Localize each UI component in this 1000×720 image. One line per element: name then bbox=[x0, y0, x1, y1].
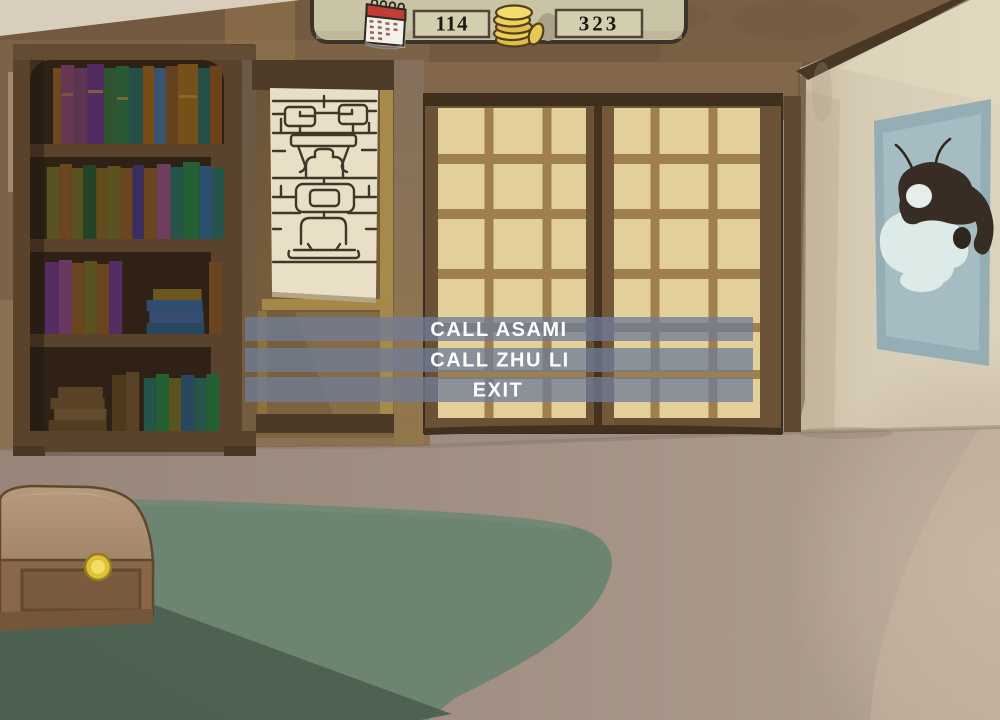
svg-text:CALL ASAMI: CALL ASAMI bbox=[430, 319, 567, 341]
svg-text:323: 323 bbox=[579, 12, 620, 36]
svg-text:CALL ZHU LI: CALL ZHU LI bbox=[430, 350, 569, 372]
svg-text:114: 114 bbox=[435, 12, 468, 36]
svg-text:EXIT: EXIT bbox=[473, 380, 523, 402]
